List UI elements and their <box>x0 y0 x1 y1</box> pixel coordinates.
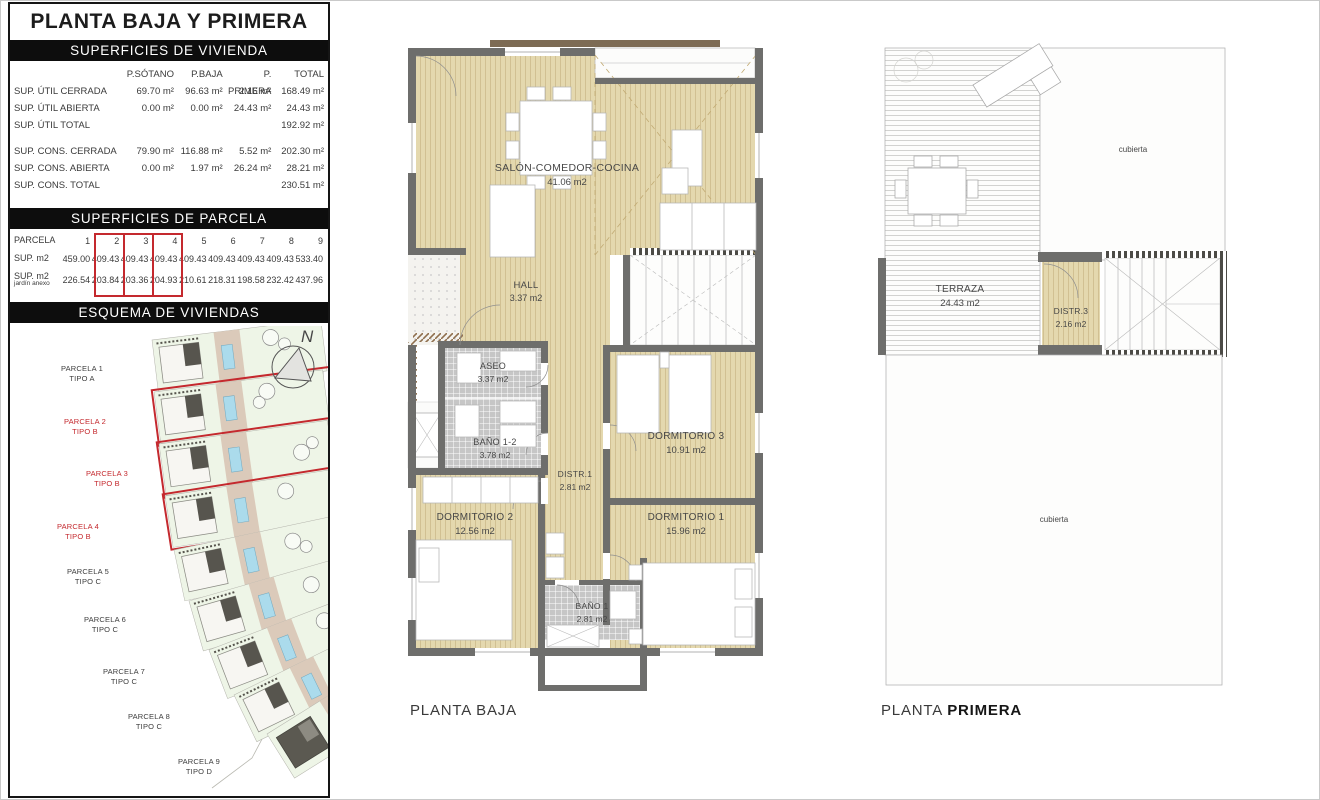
compass-n-label: N <box>301 327 314 346</box>
wardrobe <box>423 477 538 503</box>
parcel-label-5: PARCELA 5TIPO C <box>55 567 121 586</box>
floorplan-planta-baja: SALÓN-COMEDOR-COCINA 41.06 m2 HALL 3.37 … <box>405 33 777 693</box>
table-row: SUP. ÚTIL ABIERTA 0.00 m² 0.00 m² 24.43 … <box>14 100 324 117</box>
room-area-aseo: 3.37 m2 <box>478 374 509 384</box>
room-area-dorm2: 12.56 m2 <box>455 526 495 537</box>
parcela-header: SUPERFICIES DE PARCELA <box>10 208 328 229</box>
room-area-distr3: 2.16 m2 <box>1056 319 1087 329</box>
parcel-label-3: PARCELA 3TIPO B <box>74 469 140 488</box>
room-label-salon: SALÓN-COMEDOR-COCINA <box>495 161 639 174</box>
room-area-terraza: 24.43 m2 <box>940 298 980 309</box>
table-row: SUP. CONS. CERRADA 79.90 m² 116.88 m² 5.… <box>14 143 324 160</box>
room-label-bano1: BAÑO 1 <box>576 601 609 611</box>
nightstand <box>629 565 642 580</box>
table-row: SUP. ÚTIL CERRADA 69.70 m² 96.63 m² 2.16… <box>14 83 324 100</box>
room-label-terraza: TERRAZA <box>936 284 985 295</box>
parcel-label-9: PARCELA 9TIPO D <box>166 757 232 776</box>
room-area-bano12: 3.78 m2 <box>480 450 511 460</box>
table-row: SUP. CONS. ABIERTA 0.00 m² 1.97 m² 26.24… <box>14 160 324 177</box>
highlight-parcela-2 <box>94 233 125 297</box>
sink <box>500 401 536 423</box>
pillow <box>735 569 752 599</box>
pergola-hatch <box>413 333 463 342</box>
vivienda-header: SUPERFICIES DE VIVIENDA <box>10 40 328 61</box>
toilet <box>610 591 636 619</box>
sink <box>546 533 564 554</box>
roof-top <box>1040 48 1225 260</box>
col-sotano: P.SÓTANO <box>125 66 174 83</box>
parcel-label-1: PARCELA 1TIPO A <box>49 364 115 383</box>
stairs-baja <box>630 248 756 345</box>
parcel-label-7: PARCELA 7TIPO C <box>91 667 157 686</box>
col-baja: P.BAJA <box>174 66 223 83</box>
room-label-hall: HALL <box>514 280 539 291</box>
caption-planta-primera: PLANTA PRIMERA <box>881 702 1022 719</box>
col-primera: P. PRIMERA <box>223 66 272 83</box>
pillow <box>735 607 752 637</box>
room-area-salon: 41.06 m2 <box>547 177 587 188</box>
pillow <box>419 548 439 582</box>
bed <box>669 355 711 433</box>
kitchen-cabinets <box>660 203 756 250</box>
highlight-parcela-3 <box>123 233 154 297</box>
room-label-dorm3: DORMITORIO 3 <box>648 431 725 442</box>
room-label-dorm2: DORMITORIO 2 <box>437 512 514 523</box>
room-label-distr1: DISTR.1 <box>558 469 593 479</box>
sofa <box>490 185 535 257</box>
parcela-table: PARCELA 1 2 3 4 5 6 7 8 9 SUP. m2 459.00… <box>14 232 324 292</box>
label-cubierta-top: cubierta <box>1119 145 1148 154</box>
stairs-primera <box>1105 251 1227 357</box>
parcel-label-8: PARCELA 8TIPO C <box>116 712 182 731</box>
esquema-header: ESQUEMA DE VIVIENDAS <box>10 302 328 323</box>
table-row: SUP. ÚTIL TOTAL 192.92 m² <box>14 117 324 134</box>
caption-planta-baja: PLANTA BAJA <box>410 702 517 719</box>
pergola-beam <box>490 40 720 47</box>
room-label-bano12: BAÑO 1-2 <box>473 437 516 447</box>
room-distr3-floor <box>1042 262 1100 345</box>
nightstand <box>660 352 669 368</box>
parcel-label-2: PARCELA 2TIPO B <box>52 417 118 436</box>
parcel-label-6: PARCELA 6TIPO C <box>72 615 138 634</box>
room-area-dorm1: 15.96 m2 <box>666 526 706 537</box>
page-title: PLANTA BAJA Y PRIMERA <box>10 10 328 34</box>
bed <box>617 355 659 433</box>
vivienda-table: P.SÓTANO P.BAJA P. PRIMERA TOTAL SUP. ÚT… <box>14 66 324 194</box>
highlight-parcela-4 <box>152 233 183 297</box>
floorplan-planta-primera: cubierta TERRAZA 24.43 m2 DISTR.3 2.16 m… <box>878 40 1230 690</box>
room-area-bano1: 2.81 m2 <box>577 614 608 624</box>
table-row: SUP. CONS. TOTAL 230.51 m² <box>14 177 324 194</box>
parcel-label-4: PARCELA 4TIPO B <box>45 522 111 541</box>
toilet <box>455 405 479 437</box>
terrace-table <box>908 168 966 214</box>
table-header-row: P.SÓTANO P.BAJA P. PRIMERA TOTAL <box>14 66 324 83</box>
entrance-porch <box>408 255 460 345</box>
nightstand <box>629 629 642 644</box>
room-label-aseo: ASEO <box>480 361 506 371</box>
room-label-distr3: DISTR.3 <box>1054 306 1089 316</box>
info-panel: PLANTA BAJA Y PRIMERA SUPERFICIES DE VIV… <box>8 2 330 798</box>
room-area-distr1: 2.81 m2 <box>560 482 591 492</box>
room-area-dorm3: 10.91 m2 <box>666 445 706 456</box>
room-area-hall: 3.37 m2 <box>510 293 543 303</box>
label-cubierta-bottom: cubierta <box>1040 515 1069 524</box>
sink <box>546 557 564 578</box>
room-label-dorm1: DORMITORIO 1 <box>648 512 725 523</box>
col-total: TOTAL <box>271 66 324 83</box>
